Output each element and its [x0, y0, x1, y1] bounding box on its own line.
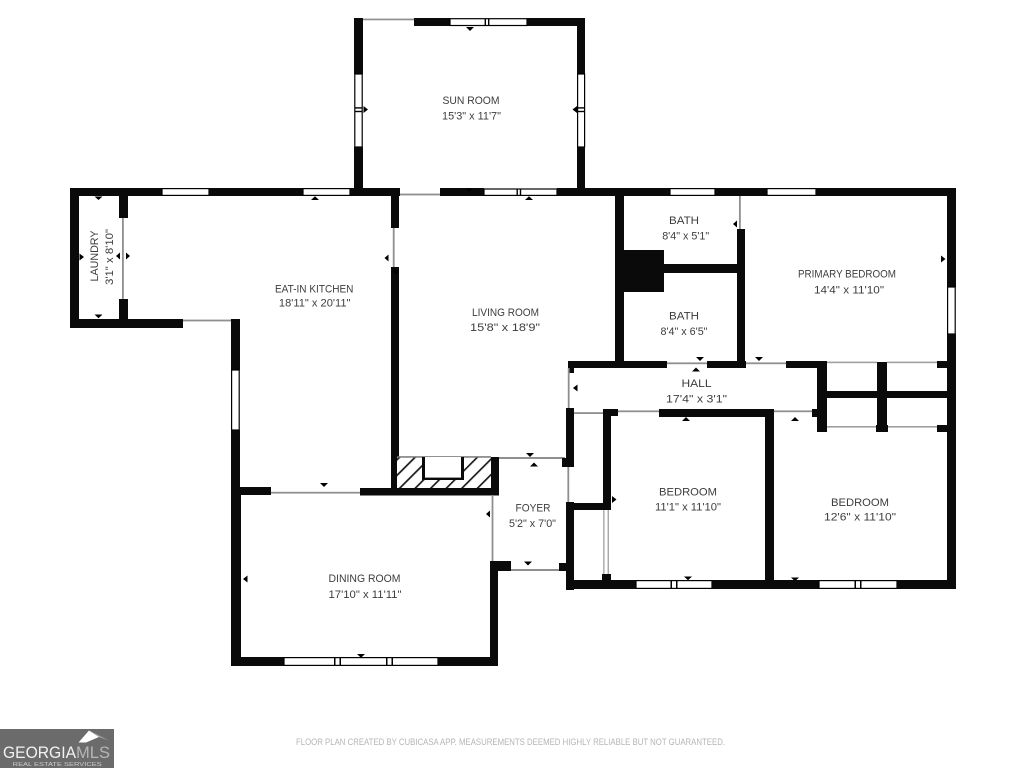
svg-text:EAT-IN KITCHEN: EAT-IN KITCHEN [275, 283, 354, 295]
svg-text:15'8" x 18'9": 15'8" x 18'9" [470, 322, 540, 334]
svg-text:3'1" x 8'10": 3'1" x 8'10" [104, 229, 116, 285]
svg-text:18'11" x 20'11": 18'11" x 20'11" [279, 298, 351, 310]
svg-text:15'3" x 11'7": 15'3" x 11'7" [442, 110, 501, 122]
svg-text:LIVING ROOM: LIVING ROOM [472, 307, 539, 319]
svg-text:DINING ROOM: DINING ROOM [329, 573, 401, 585]
svg-text:REAL ESTATE SERVICES: REAL ESTATE SERVICES [13, 762, 102, 768]
svg-text:12'6" x 11'10": 12'6" x 11'10" [824, 512, 896, 524]
svg-text:8'4" x 6'5": 8'4" x 6'5" [661, 326, 708, 338]
svg-text:14'4" x 11'10": 14'4" x 11'10" [814, 285, 884, 297]
svg-text:8'4" x 5'1": 8'4" x 5'1" [662, 231, 709, 243]
svg-text:HALL: HALL [682, 378, 712, 390]
svg-text:FLOOR PLAN CREATED BY CUBICASA: FLOOR PLAN CREATED BY CUBICASA APP. MEAS… [296, 737, 725, 748]
svg-text:BATH: BATH [669, 215, 699, 227]
svg-text:PRIMARY BEDROOM: PRIMARY BEDROOM [798, 269, 896, 281]
svg-text:BEDROOM: BEDROOM [659, 487, 717, 499]
svg-text:MLS: MLS [76, 744, 110, 762]
svg-text:LAUNDRY: LAUNDRY [89, 230, 101, 282]
svg-text:17'4" x 3'1": 17'4" x 3'1" [666, 394, 727, 406]
svg-text:5'2" x 7'0": 5'2" x 7'0" [509, 518, 556, 530]
svg-text:BEDROOM: BEDROOM [831, 497, 889, 509]
svg-text:FOYER: FOYER [516, 503, 551, 515]
svg-text:11'1" x 11'10": 11'1" x 11'10" [655, 501, 721, 513]
svg-text:17'10" x 11'11": 17'10" x 11'11" [329, 589, 402, 601]
svg-text:GEORGIA: GEORGIA [3, 744, 76, 762]
svg-text:BATH: BATH [669, 311, 699, 323]
svg-text:SUN ROOM: SUN ROOM [443, 95, 500, 107]
